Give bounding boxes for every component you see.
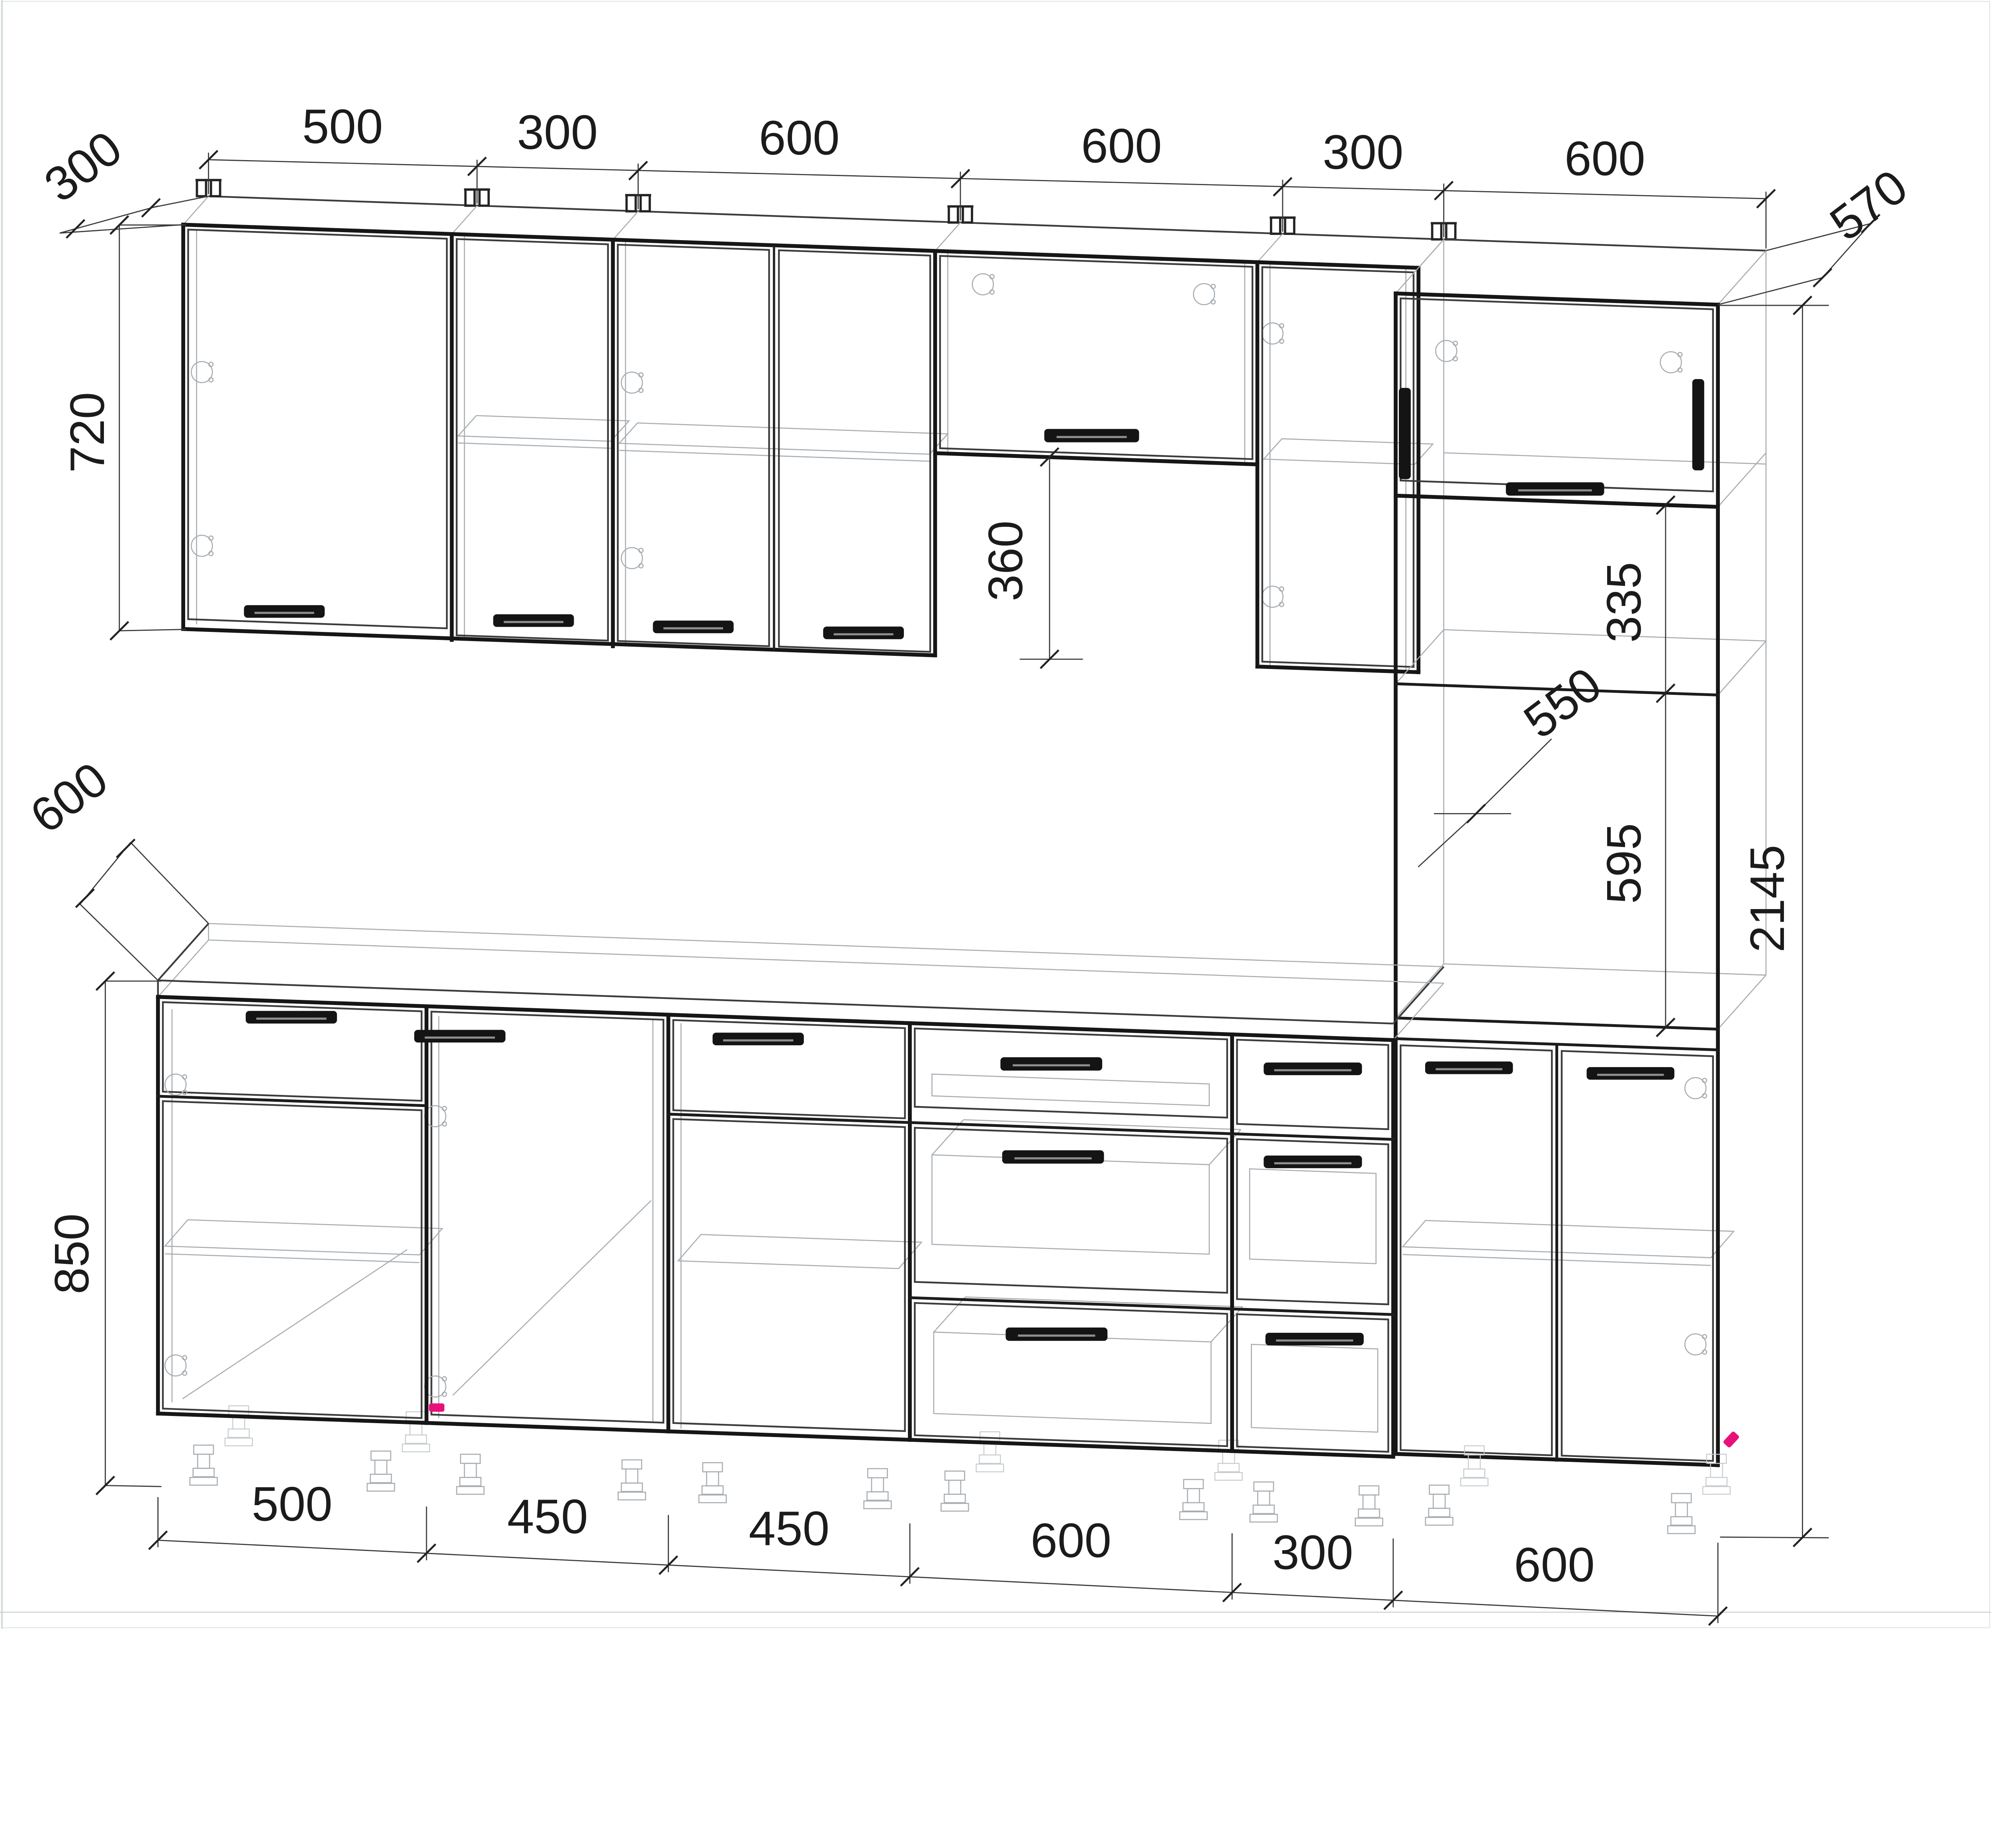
dim-bottom-500: 500: [252, 1477, 332, 1531]
handle: [1399, 388, 1411, 479]
dim-wall-height: 720: [60, 392, 114, 473]
dim-niche-depth: 550: [1514, 657, 1611, 749]
countertop: [158, 923, 1444, 1040]
handle: [1692, 379, 1704, 470]
handle: [414, 1030, 505, 1042]
handle: [1586, 1067, 1674, 1080]
handle: [246, 1011, 337, 1024]
handle: [493, 614, 574, 627]
dim-bottom-600b: 600: [1514, 1537, 1595, 1592]
dim-wall-depth: 300: [34, 120, 131, 212]
dim-top-300b: 300: [1322, 125, 1403, 179]
handle: [653, 621, 734, 634]
handle: [1044, 429, 1139, 442]
handles: [244, 379, 1704, 1345]
base-cabinet-row: [158, 940, 1730, 1534]
dim-top-600b: 600: [1081, 119, 1162, 173]
handle: [1006, 1328, 1108, 1341]
wall-cabinet-row: [183, 180, 1457, 672]
dim-niche-height: 335: [1597, 562, 1651, 643]
dim-top-500: 500: [302, 100, 383, 154]
dim-bottom-300: 300: [1272, 1525, 1353, 1579]
dim-tall-depth: 570: [1820, 159, 1917, 251]
dim-top-600c: 600: [1565, 131, 1645, 186]
handle: [712, 1033, 804, 1045]
handle: [1000, 1057, 1102, 1070]
handle: [1263, 1062, 1362, 1075]
dim-hood-offset: 360: [978, 520, 1033, 601]
handle: [1002, 1150, 1104, 1164]
dim-bottom-600a: 600: [1031, 1513, 1111, 1567]
handle: [1425, 1062, 1513, 1074]
handle: [823, 627, 904, 639]
dim-total-height: 2145: [1740, 845, 1794, 952]
tall-oven-unit: [1396, 239, 1766, 1465]
dim-base-depth: 600: [20, 751, 117, 843]
dim-bottom-450a: 450: [507, 1489, 588, 1543]
dim-bottom-450b: 450: [749, 1501, 829, 1555]
handle: [1506, 482, 1604, 495]
handle: [1263, 1156, 1362, 1168]
dim-oven-height: 595: [1597, 823, 1651, 904]
dimension-annotations: 500 300 600 600 300 600 500 450 450 600 …: [20, 100, 1917, 1625]
dim-top-300: 300: [517, 105, 598, 159]
rear-feet: [225, 1406, 1730, 1494]
kitchen-technical-drawing: 500 300 600 600 300 600 500 450 450 600 …: [0, 0, 1991, 1629]
dim-top-600a: 600: [759, 111, 840, 165]
handle: [1265, 1333, 1364, 1345]
dim-base-height: 850: [45, 1213, 99, 1294]
handle: [244, 605, 325, 618]
drawing-canvas: 500 300 600 600 300 600 500 450 450 600 …: [0, 0, 1991, 1629]
sheet-frame: [0, 0, 1991, 1629]
